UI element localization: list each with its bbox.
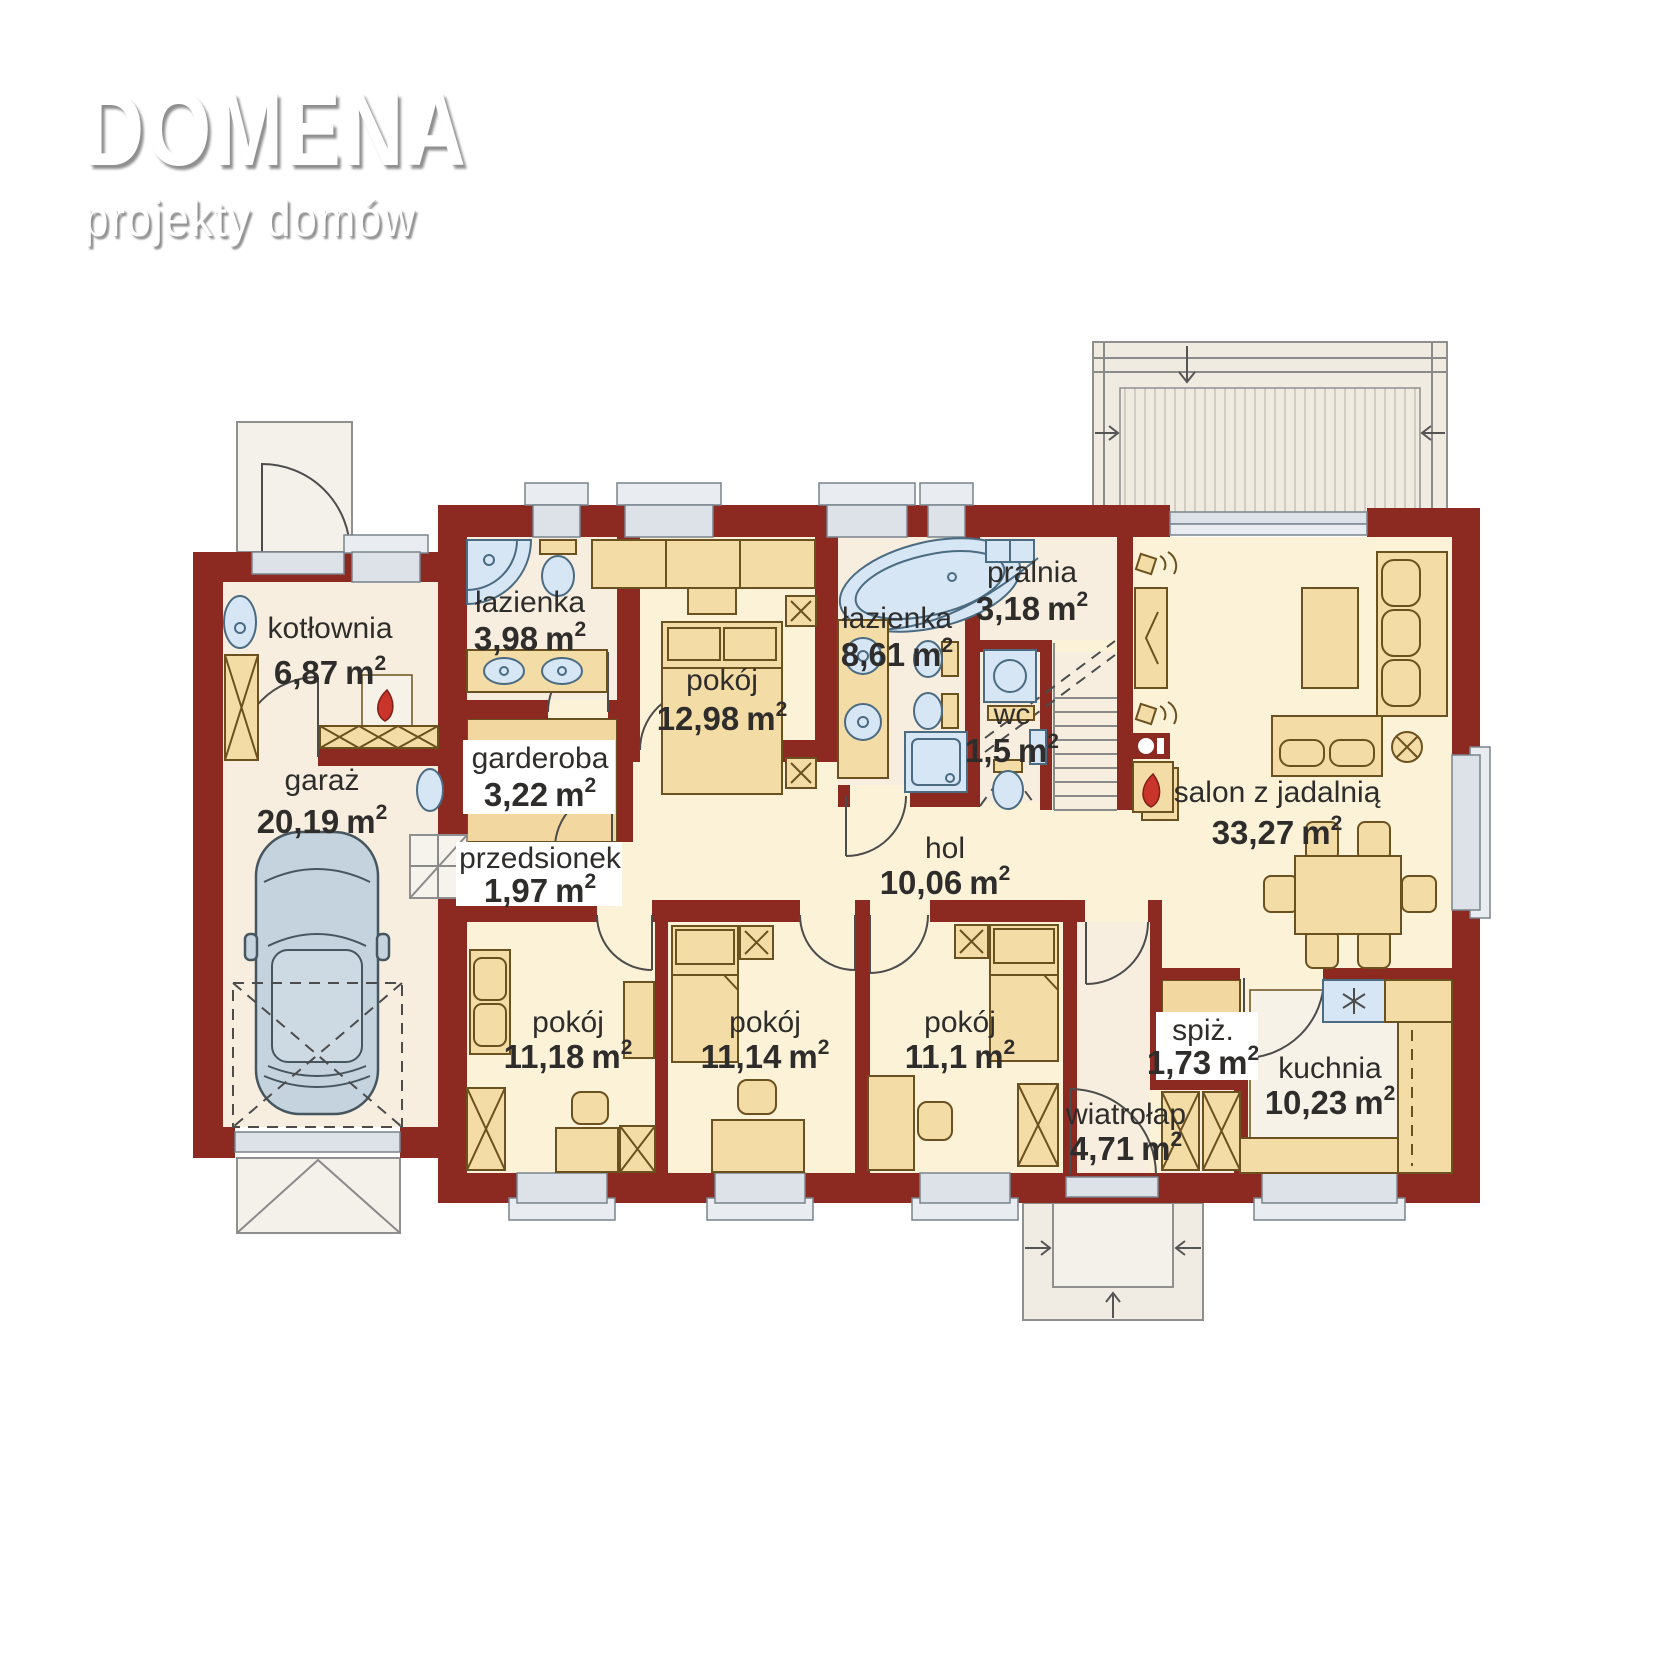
- window-lazienka-small: [533, 505, 580, 537]
- tv-cabinet: [1135, 588, 1167, 688]
- area-garaz: 20,19m2: [257, 801, 388, 840]
- floor-stairs: [1052, 652, 1117, 810]
- label-wiatrolap: wiatrołap: [1065, 1098, 1186, 1131]
- door-sill-kotlownia: [252, 552, 344, 574]
- floor-plan-drawing: kotłownia 6,87m2 garaż 20,19m2 łazienka …: [0, 0, 1680, 1680]
- area-pokoj-1298: 12,98m2: [657, 698, 788, 737]
- label-pralnia: pralnia: [987, 556, 1077, 589]
- area-pokoj-1118: 11,18m2: [504, 1036, 633, 1075]
- entry-door-sill: [1066, 1177, 1158, 1197]
- label-lazienka-big: łazienka: [842, 602, 952, 635]
- area-spiz: 1,73m2: [1147, 1042, 1259, 1081]
- window-pokoj-1114: [715, 1173, 805, 1203]
- bidet: [914, 693, 942, 729]
- label-pokoj-1298: pokój: [686, 664, 758, 697]
- label-przedsionek: przedsionek: [459, 842, 622, 875]
- area-lazienka-small: 3,98m2: [474, 618, 586, 657]
- area-kuchnia: 10,23m2: [1265, 1082, 1396, 1121]
- label-pokoj-1118: pokój: [532, 1006, 604, 1039]
- window-kuchnia: [1262, 1173, 1397, 1203]
- label-spiz: spiż.: [1172, 1014, 1234, 1047]
- window-pokoj-1298: [625, 505, 713, 537]
- area-przedsionek: 1,97m2: [484, 870, 596, 909]
- window-salon: [1452, 755, 1480, 910]
- area-kotlownia: 6,87m2: [274, 652, 386, 691]
- garage-driveway: [237, 1158, 400, 1233]
- fireplace: [1133, 762, 1178, 820]
- window-pokoj-1118: [517, 1173, 607, 1203]
- garage-door-sill: [235, 1132, 400, 1152]
- terrace: [1093, 342, 1447, 530]
- label-garderoba: garderoba: [472, 742, 609, 775]
- window-pokoj-111: [920, 1173, 1010, 1203]
- area-salon: 33,27m2: [1212, 812, 1343, 851]
- area-pokoj-111: 11,1m2: [905, 1036, 1015, 1075]
- kotlownia-cabinet: [225, 655, 258, 760]
- coffee-table: [1302, 588, 1358, 688]
- side-porch: [237, 422, 352, 552]
- area-hol: 10,06m2: [880, 862, 1011, 901]
- area-pokoj-1114: 11,14m2: [701, 1036, 830, 1075]
- floor-plan-page: DOMENA projekty domów: [0, 0, 1680, 1680]
- garage-basin: [417, 769, 443, 811]
- car: [245, 832, 389, 1114]
- window-pralnia: [928, 505, 965, 537]
- area-wiatrolap: 4,71m2: [1070, 1128, 1182, 1167]
- label-lazienka-small: łazienka: [475, 586, 585, 619]
- window-kotlownia: [352, 552, 420, 582]
- dining-table: [1295, 856, 1401, 934]
- area-garderoba: 3,22m2: [484, 774, 596, 813]
- entry-porch: [1023, 1203, 1203, 1320]
- washing-machine: [984, 650, 1036, 702]
- area-pralnia: 3,18m2: [976, 588, 1088, 627]
- label-pokoj-111: pokój: [924, 1006, 996, 1039]
- window-lazienka-big: [827, 505, 907, 537]
- area-lazienka-big: 8,61m2: [841, 634, 953, 673]
- label-wc: wc: [993, 698, 1031, 731]
- partition-wardrobe: [320, 726, 438, 748]
- terrace-sliding-door: [1170, 512, 1367, 524]
- label-salon: salon z jadalnią: [1174, 776, 1381, 809]
- toilet-tank: [540, 540, 576, 554]
- label-hol: hol: [925, 832, 965, 865]
- wc-toilet: [993, 771, 1023, 809]
- label-garaz: garaż: [284, 764, 359, 797]
- label-kotlownia: kotłownia: [267, 612, 392, 645]
- label-kuchnia: kuchnia: [1278, 1052, 1382, 1085]
- label-pokoj-1114: pokój: [729, 1006, 801, 1039]
